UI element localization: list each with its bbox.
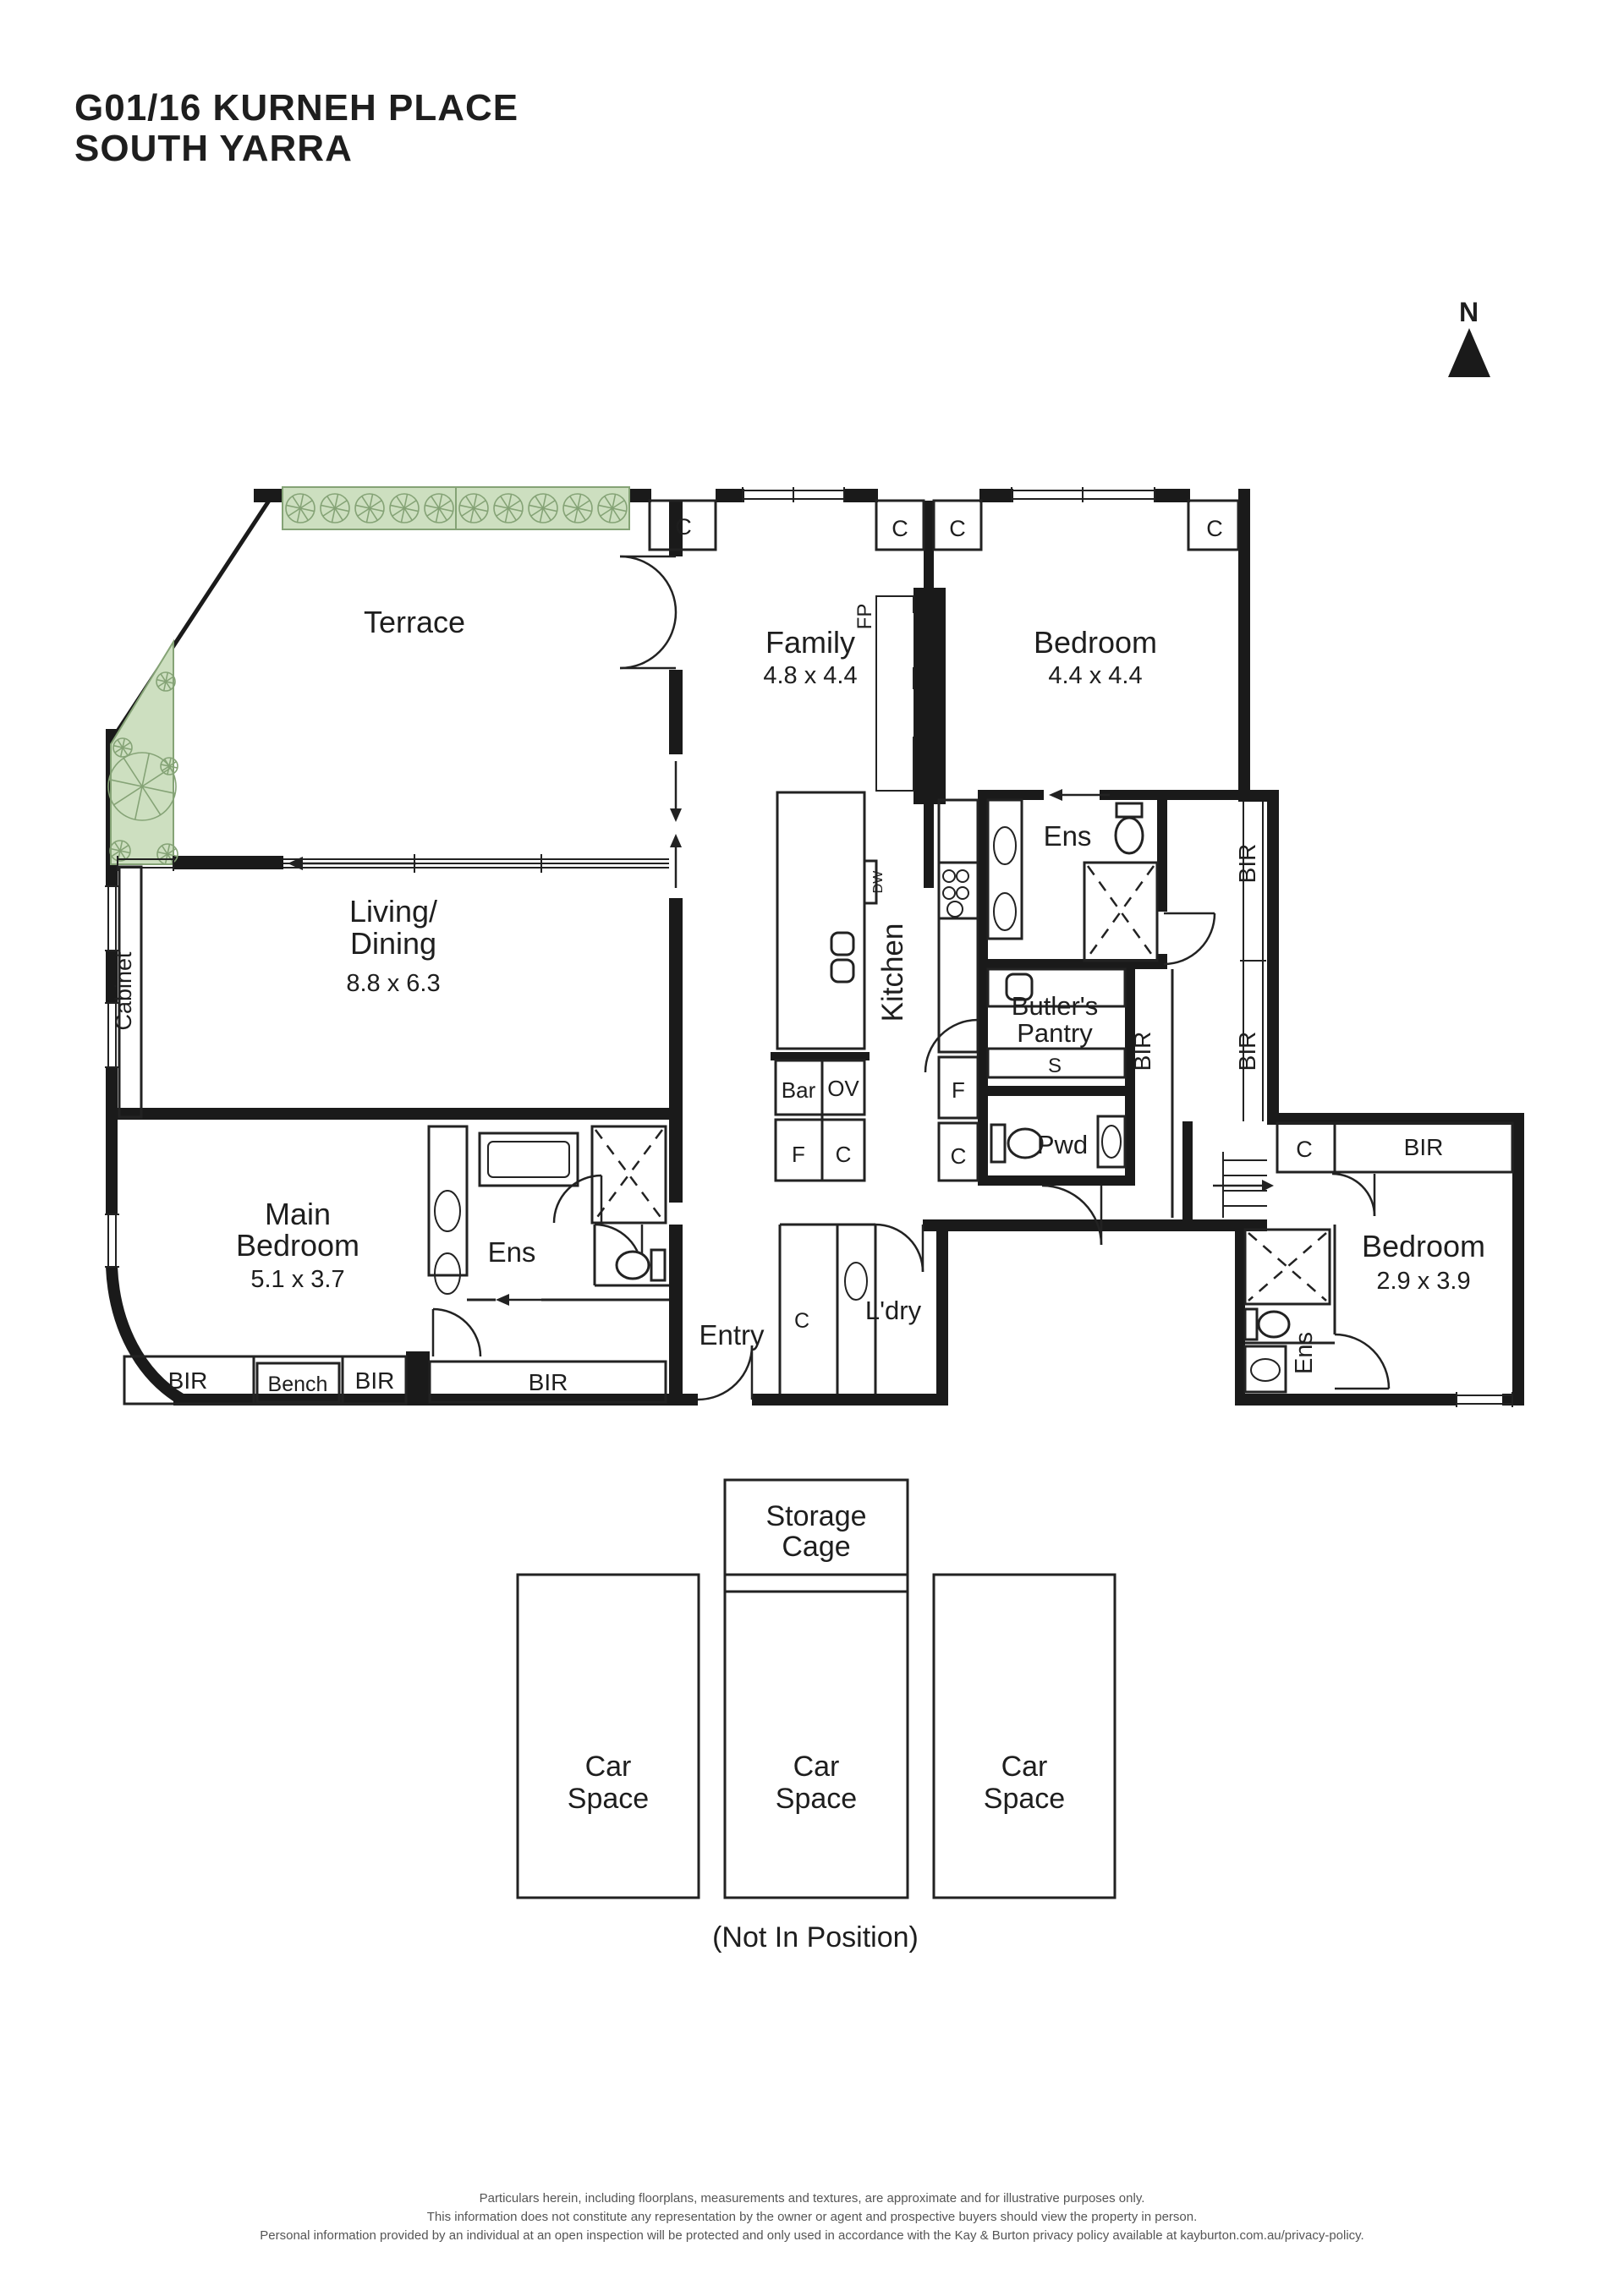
door [1042,1186,1101,1245]
room-label-kitchen: Kitchen [876,923,909,1022]
window [743,487,844,502]
room-dims-bedroom-right: 2.9 x 3.9 [1376,1268,1470,1295]
planter-strip [283,487,629,529]
car-space-box-3 [934,1575,1115,1898]
window [1012,487,1155,502]
opening-arrow [670,761,682,822]
label-storage-2: Cage [782,1531,850,1563]
door [1164,913,1215,964]
sink-icon [1251,1359,1280,1381]
toilet-icon [617,1250,665,1280]
label-sink: S [1048,1055,1062,1077]
label-car2-2: Space [776,1783,857,1815]
title-line1: G01/16 KURNEH PLACE [74,87,518,129]
room-dims-living: 8.8 x 6.3 [346,970,440,997]
room-dims-main: 5.1 x 3.7 [250,1266,344,1293]
door [1332,1174,1374,1216]
label-bir-3: BIR [1234,1032,1260,1071]
door [1335,1334,1389,1389]
room-label-butlers-1: Butler's [1012,991,1098,1021]
room-label-powder: Pwd [1037,1130,1088,1159]
label-bir-5: BIR [355,1367,395,1394]
disclaimer-line2: This information does not constitute any… [427,2210,1198,2224]
label-closet-t1: C [675,514,692,540]
page-title: G01/16 KURNEH PLACE SOUTH YARRA [74,87,518,169]
room-label-ens-top: Ens [1044,820,1092,852]
room-label-bedroom-right: Bedroom [1362,1229,1485,1263]
label-car1-2: Space [568,1783,649,1815]
label-car1-1: Car [585,1751,632,1783]
door [875,1225,923,1272]
room-label-laundry: L'dry [865,1296,922,1325]
disclaimer-line1: Particulars herein, including floorplans… [480,2191,1145,2206]
label-bir-2: BIR [1234,844,1260,884]
room-label-living-2: Dining [350,926,436,961]
sink-icon [1098,1116,1125,1167]
label-closet-t2: C [892,516,908,541]
label-closet-ldry: C [794,1309,809,1333]
room-dims-family: 4.8 x 4.4 [763,662,857,689]
label-closet-t4: C [1206,516,1223,541]
opening-arrow [670,834,682,888]
label-bir-1: BIR [1129,1032,1155,1071]
room-dims-bedroom-top: 4.4 x 4.4 [1048,662,1142,689]
title-line2: SOUTH YARRA [74,128,353,169]
room-label-main-1: Main [265,1197,331,1231]
disclaimer-line3: Personal information provided by an indi… [260,2228,1363,2243]
window [105,886,119,951]
window [105,1214,119,1267]
label-oven: OV [827,1076,859,1101]
french-door [620,612,676,668]
room-label-entry: Entry [699,1319,765,1351]
label-storage-1: Storage [765,1500,866,1532]
room-label-ens-main: Ens [488,1236,536,1268]
slider-arrow [496,1294,541,1306]
label-closet-k1: C [836,1142,852,1167]
toilet-icon [991,1125,1042,1162]
north-triangle [1448,328,1490,377]
door [925,1020,978,1072]
entry-door [698,1345,752,1400]
label-bir-4: BIR [168,1367,208,1394]
floorplan-canvas: G01/16 KURNEH PLACE SOUTH YARRA N [0,0,1624,2296]
room-label-bedroom-top: Bedroom [1034,625,1157,660]
disclaimer: Particulars herein, including floorplans… [260,2191,1363,2243]
car-space-box-2 [725,1575,908,1898]
room-label-living-1: Living/ [349,894,437,929]
label-car3-2: Space [984,1783,1065,1815]
label-car3-1: Car [1001,1751,1048,1783]
room-label-main-2: Bedroom [236,1228,359,1263]
label-fridge-2: F [952,1077,965,1103]
label-fridge-1: F [792,1142,805,1167]
car-space-box-1 [518,1575,699,1898]
label-fireplace: FP [853,604,876,630]
toilet-icon [1245,1309,1289,1340]
room-label-butlers-2: Pantry [1017,1018,1093,1048]
label-bar: Bar [782,1077,816,1103]
label-bir-7: BIR [1404,1134,1444,1160]
room-label-family: Family [765,625,855,660]
labels: Terrace Family 4.8 x 4.4 Bedroom 4.4 x 4… [111,514,1485,1954]
room-label-ens-right: Ens [1291,1332,1318,1374]
label-closet-b2: C [1296,1137,1313,1162]
north-label: N [1459,297,1479,327]
door [433,1309,480,1356]
stairs-arrow [1213,1180,1274,1192]
label-closet-t3: C [949,516,966,541]
label-not-in-position: (Not In Position) [712,1921,919,1954]
label-closet-k2: C [951,1143,967,1169]
label-bir-6: BIR [529,1369,568,1395]
garden-bed [108,642,178,864]
floorplan-page: G01/16 KURNEH PLACE SOUTH YARRA N [0,0,1624,2296]
label-cabinet: Cabinet [111,951,136,1031]
room-label-terrace: Terrace [364,605,465,639]
label-bench: Bench [268,1373,328,1396]
toilet-icon [1116,803,1143,853]
label-car2-1: Car [793,1751,840,1783]
label-dishwasher: DW [871,870,886,894]
french-door [620,556,676,612]
north-arrow-icon: N [1448,297,1490,377]
